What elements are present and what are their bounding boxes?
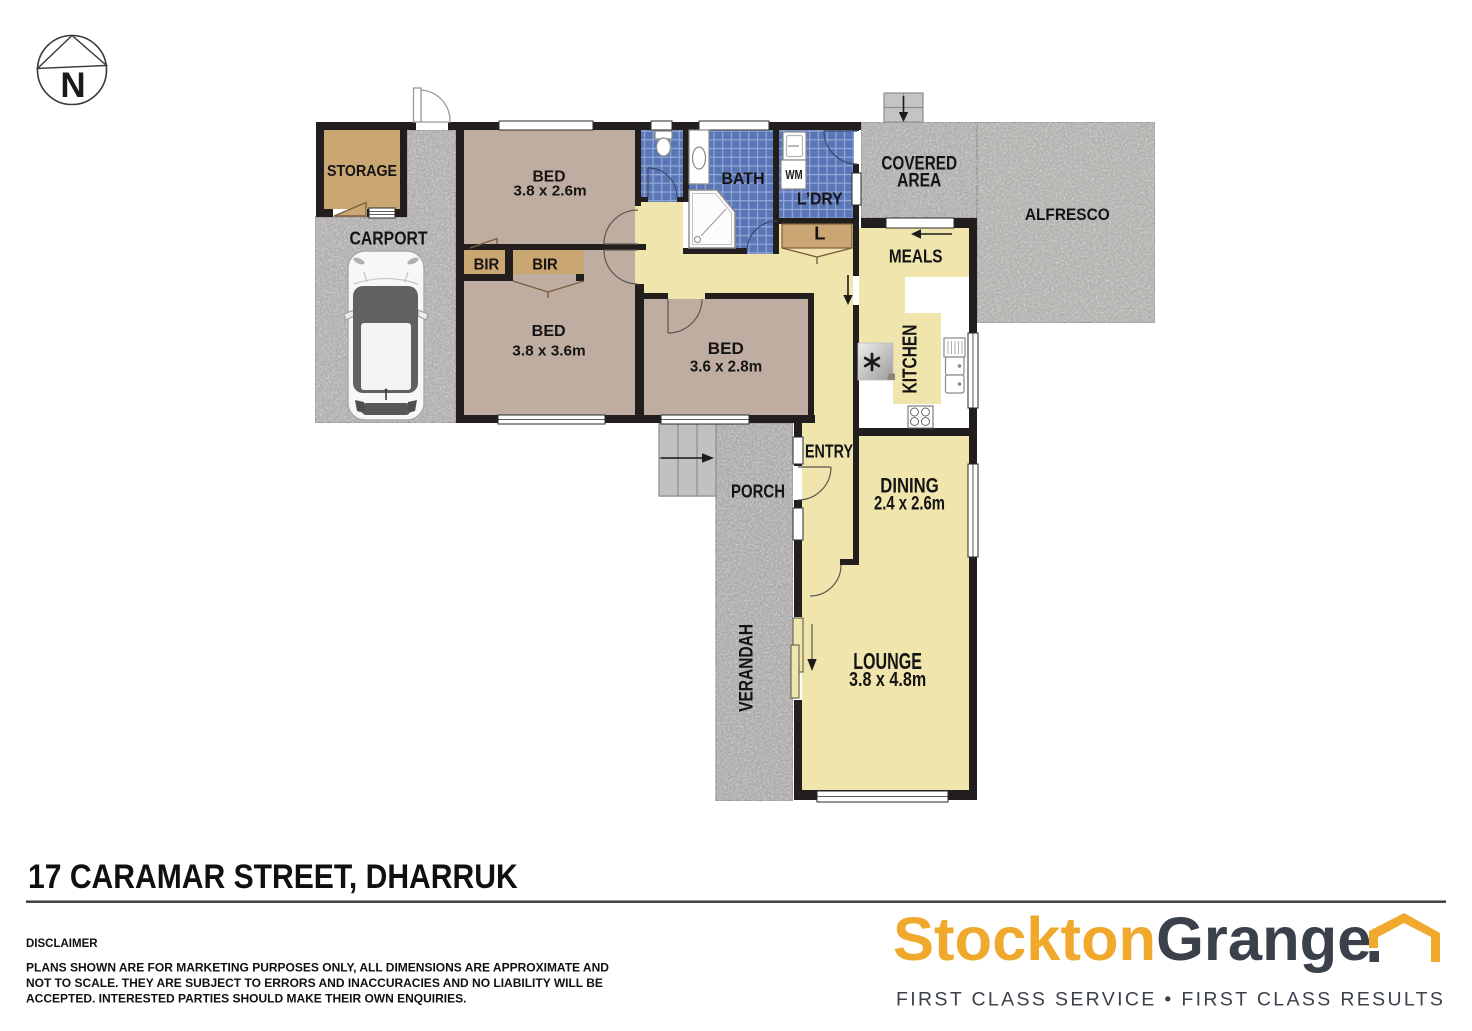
svg-text:DISCLAIMER: DISCLAIMER — [26, 938, 98, 950]
svg-text:ACCEPTED. INTERESTED PARTIES S: ACCEPTED. INTERESTED PARTIES SHOULD MAKE… — [26, 992, 466, 1006]
svg-text:BED: BED — [708, 340, 744, 358]
svg-text:ENTRY: ENTRY — [805, 442, 853, 462]
svg-text:3.6 x 2.8m: 3.6 x 2.8m — [690, 359, 762, 376]
svg-text:VERANDAH: VERANDAH — [737, 624, 758, 712]
svg-text:L’DRY: L’DRY — [797, 188, 843, 208]
svg-text:L: L — [814, 224, 825, 244]
svg-text:BIR: BIR — [532, 257, 558, 274]
svg-text:3.8 x 4.8m: 3.8 x 4.8m — [849, 669, 926, 691]
svg-text:2.4 x 2.6m: 2.4 x 2.6m — [874, 492, 945, 514]
svg-text:BED: BED — [532, 323, 566, 340]
svg-text:N: N — [60, 66, 85, 105]
svg-text:MEALS: MEALS — [889, 246, 943, 266]
svg-text:NOT TO SCALE. THEY ARE SUBJECT: NOT TO SCALE. THEY ARE SUBJECT TO ERRORS… — [26, 976, 603, 990]
svg-text:PORCH: PORCH — [731, 480, 785, 501]
svg-text:3.8 x 3.6m: 3.8 x 3.6m — [512, 342, 585, 359]
svg-text:17 CARAMAR STREET, DHARRUK: 17 CARAMAR STREET, DHARRUK — [28, 857, 518, 895]
svg-text:AREA: AREA — [897, 171, 941, 192]
svg-text:ALFRESCO: ALFRESCO — [1025, 205, 1110, 224]
svg-text:3.8 x 2.6m: 3.8 x 2.6m — [513, 183, 586, 200]
svg-text:WM: WM — [785, 167, 802, 182]
svg-text:BATH: BATH — [721, 169, 764, 188]
svg-text:StocktonGrange: StocktonGrange — [893, 905, 1371, 974]
svg-text:KITCHEN: KITCHEN — [900, 325, 922, 394]
svg-text:BIR: BIR — [474, 257, 500, 274]
svg-text:CARPORT: CARPORT — [350, 229, 428, 249]
svg-text:FIRST CLASS SERVICE • FIRST: FIRST CLASS SERVICE • FIRST CLASS RESULT… — [896, 989, 1445, 1011]
svg-text:STORAGE: STORAGE — [327, 163, 397, 180]
svg-text:PLANS SHOWN ARE FOR MARKETING: PLANS SHOWN ARE FOR MARKETING PURPOSES O… — [26, 961, 609, 975]
